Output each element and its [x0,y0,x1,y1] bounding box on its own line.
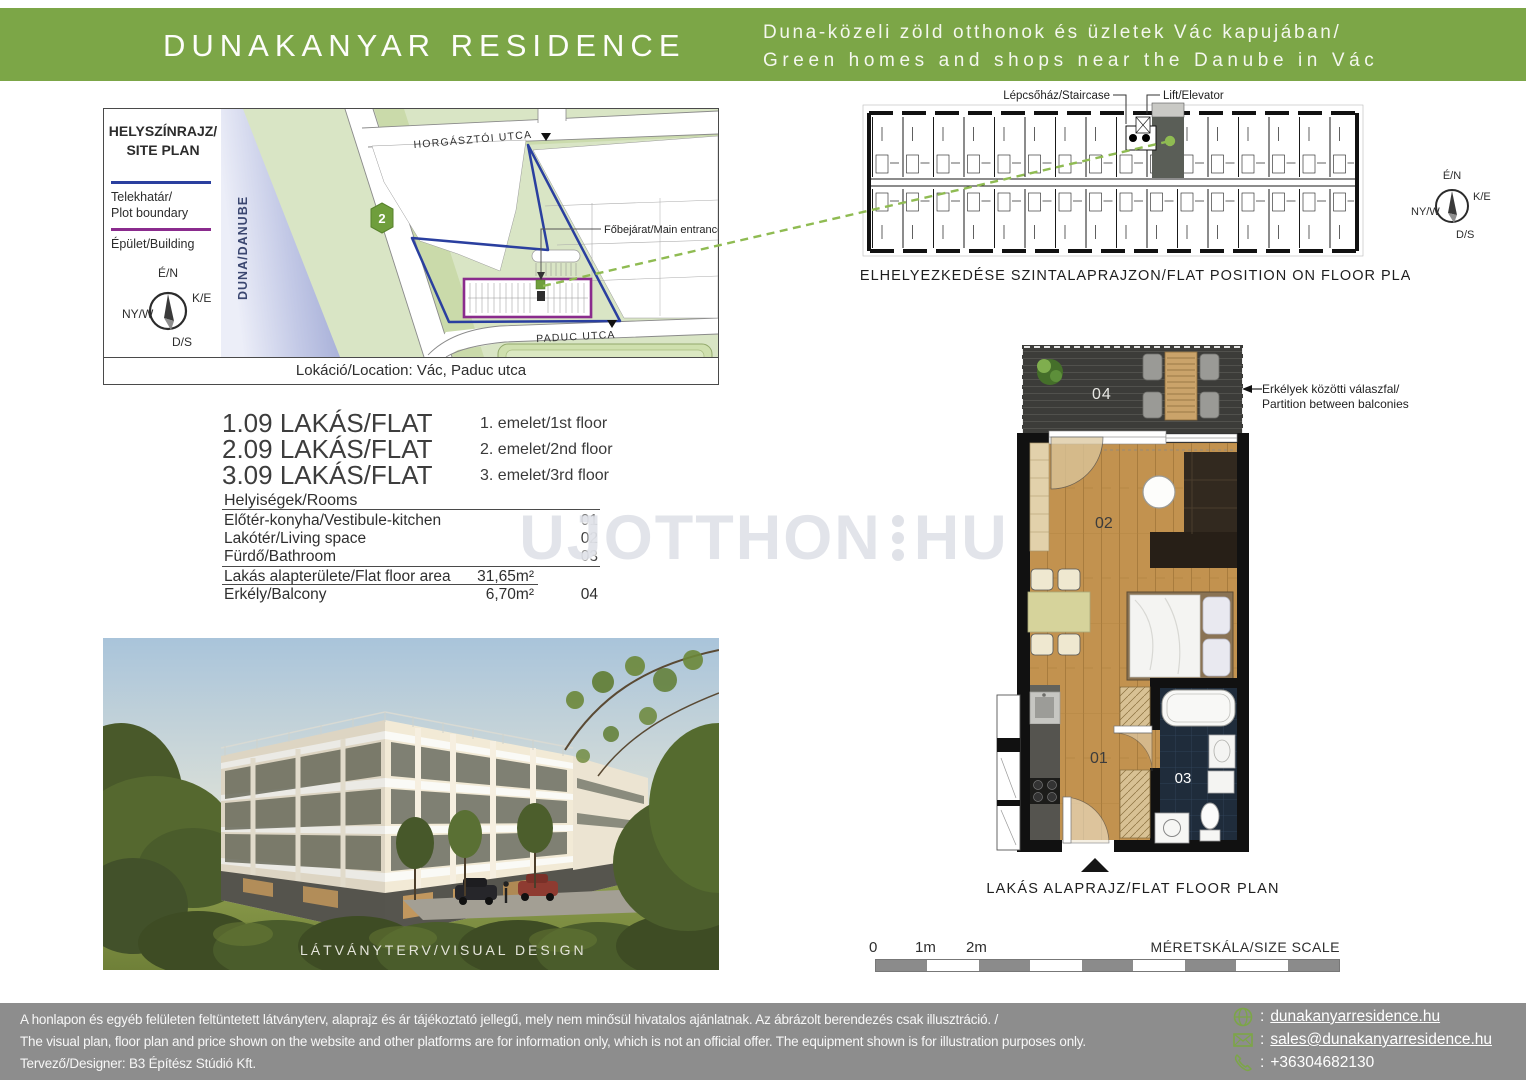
compass-w: NY/W [122,307,154,321]
building-swatch [111,228,211,231]
legend-plot-en: Plot boundary [111,206,188,220]
scale-tick-1m: 1m [915,939,936,956]
bathroom-03: 03 [1155,688,1237,843]
flat-marker-map [536,280,545,289]
room-row-label: Fürdő/Bathroom [224,548,336,566]
watermark-dots [892,515,904,561]
tagline-en: Green homes and shops near the Danube in… [763,47,1378,75]
toilet [1201,803,1219,829]
closet-upper [1120,687,1150,729]
compass2-n: É/N [1443,169,1461,182]
flat-floor-plan: 04 02 [985,338,1410,900]
compass2-s: D/S [1456,229,1474,241]
compass-n: É/N [158,265,178,280]
bathtub [1162,690,1235,726]
room-code-balcony: 04 [1092,386,1112,403]
site-plan-legend: HELYSZÍNRAJZ/ SITE PLAN Telekhatár/ Plot… [104,109,222,356]
legend-plot-hu: Telekhatár/ [111,190,172,204]
plot-boundary-swatch [111,181,211,184]
site-map: HORGÁSZTÓI UTCA PADUC UTCA Főbejárat/Mai… [221,109,718,357]
compass-s: D/S [172,335,192,349]
road-badge-number: 2 [378,211,385,226]
compass2-e: K/E [1473,191,1491,203]
entrance-label: Főbejárat/Main entrance [604,224,718,236]
compass-rose-2: É/N K/E NY/W D/S [1408,168,1504,248]
floor-strip-caption: LAKÁS ELHELYEZKEDÉSE SZINTALAPRAJZON/FLA… [860,267,1410,284]
visual-caption: LÁTVÁNYTERV/VISUAL DESIGN [300,942,587,958]
watermark: UJOTTHON HU [533,494,995,582]
phone-number[interactable]: +36304682130 [1270,1054,1374,1072]
disclaimer-en: The visual plan, floor plan and price sh… [20,1034,1086,1049]
flat-2-floor: 2. emelet/2nd floor [480,441,613,459]
bed [1127,592,1233,680]
highlighted-flat-balcony [1152,103,1184,117]
room-row-code: 03 [572,548,598,566]
room-code-vestibule: 01 [1090,750,1108,767]
visual-render-photo: LÁTVÁNYTERV/VISUAL DESIGN [103,638,719,970]
flat-1-floor: 1. emelet/1st floor [480,415,607,433]
room-row-code: 01 [572,512,598,530]
road-number-badge: 2 [371,203,393,233]
table-rule [222,509,600,510]
entrance-arrow [1081,858,1109,872]
balcony-table [1165,352,1197,420]
sep: : [1260,1054,1264,1072]
room-row-code: 02 [572,530,598,548]
floor-strip: Lépcsőház/Staircase Lift/Elevator LAKÁS … [860,85,1410,287]
contact-website[interactable]: : dunakanyarresidence.hu [1232,1006,1440,1028]
sep: : [1260,1008,1264,1026]
envelope-icon [1232,1029,1254,1051]
site-plan-title-hu: HELYSZÍNRAJZ/ [109,123,217,139]
brochure-page: DUNAKANYAR RESIDENCE Duna-közeli zöld ot… [0,0,1526,1080]
footer-bar: A honlapon és egyéb felületen feltüntete… [0,1003,1526,1080]
partition-note-hu: Erkélyek közötti válaszfal/ [1262,382,1400,396]
room-code-living: 02 [1095,515,1113,532]
flat-3-title: 3.09 LAKÁS/FLAT [222,460,433,491]
river-label: DUNA/DANUBE [236,196,250,300]
elevator-label: Lift/Elevator [1163,90,1224,102]
designer-credit: Tervező/Designer: B3 Építész Stúdió Kft. [20,1056,256,1071]
scale-tick-2m: 2m [966,939,987,956]
scale-bar [875,959,1340,972]
room-row-label: Lakótér/Living space [224,530,366,548]
staircase-label: Lépcsőház/Staircase [1003,90,1110,102]
brand-title: DUNAKANYAR RESIDENCE [163,28,686,64]
wardrobe [1030,443,1049,551]
partition-note-en: Partition between balconies [1262,397,1409,411]
compass-rose: É/N K/E NY/W D/S [120,261,216,353]
round-table [1143,476,1175,508]
room-row-label: Erkély/Balcony [224,586,327,604]
header-bar: DUNAKANYAR RESIDENCE Duna-közeli zöld ot… [0,8,1526,81]
globe-icon [1232,1006,1254,1028]
room-row-label: Előtér-konyha/Vestibule-kitchen [224,512,441,530]
contact-email[interactable]: : sales@dunakanyarresidence.hu [1232,1029,1492,1051]
rooms-header: Helyiségek/Rooms [224,492,357,510]
disclaimer-hu: A honlapon és egyéb felületen feltüntete… [20,1012,998,1027]
compass-e: K/E [192,291,211,305]
legend-building-label: Épület/Building [111,236,194,252]
site-plan-panel: HELYSZÍNRAJZ/ SITE PLAN Telekhatár/ Plot… [103,108,719,385]
corridor-niche [997,695,1020,850]
room-code-bathroom: 03 [1175,770,1192,787]
email-link[interactable]: sales@dunakanyarresidence.hu [1270,1031,1492,1049]
website-link[interactable]: dunakanyarresidence.hu [1270,1008,1440,1026]
site-plan-title-en: SITE PLAN [126,142,199,158]
flat-plan-caption: LAKÁS ALAPRAJZ/FLAT FLOOR PLAN [986,880,1279,897]
sep: : [1260,1031,1264,1049]
balcony-04: 04 [1022,345,1243,435]
building-footprint [464,279,591,317]
closet-lower [1120,770,1150,838]
washing-machine [1155,813,1189,843]
highlighted-flat[interactable] [1152,117,1184,178]
contact-phone[interactable]: : +36304682130 [1232,1052,1374,1074]
room-row-code: 04 [572,586,598,604]
room-row-value: 6,70m² [466,586,534,604]
phone-icon [1232,1052,1254,1074]
flat-3-floor: 3. emelet/3rd floor [480,467,609,485]
compass2-w: NY/W [1411,206,1440,218]
scale-caption: MÉRETSKÁLA/SIZE SCALE [1140,939,1340,955]
scale-tick-0: 0 [869,939,877,956]
legend-plot-label: Telekhatár/ Plot boundary [111,189,188,221]
tagline-hu: Duna-közeli zöld otthonok és üzletek Vác… [763,19,1378,47]
location-caption: Lokáció/Location: Vác, Paduc utca [104,357,718,384]
header-tagline: Duna-közeli zöld otthonok és üzletek Vác… [763,19,1378,75]
site-plan-title: HELYSZÍNRAJZ/ SITE PLAN [104,122,222,160]
kitchen-counter [1030,685,1060,840]
